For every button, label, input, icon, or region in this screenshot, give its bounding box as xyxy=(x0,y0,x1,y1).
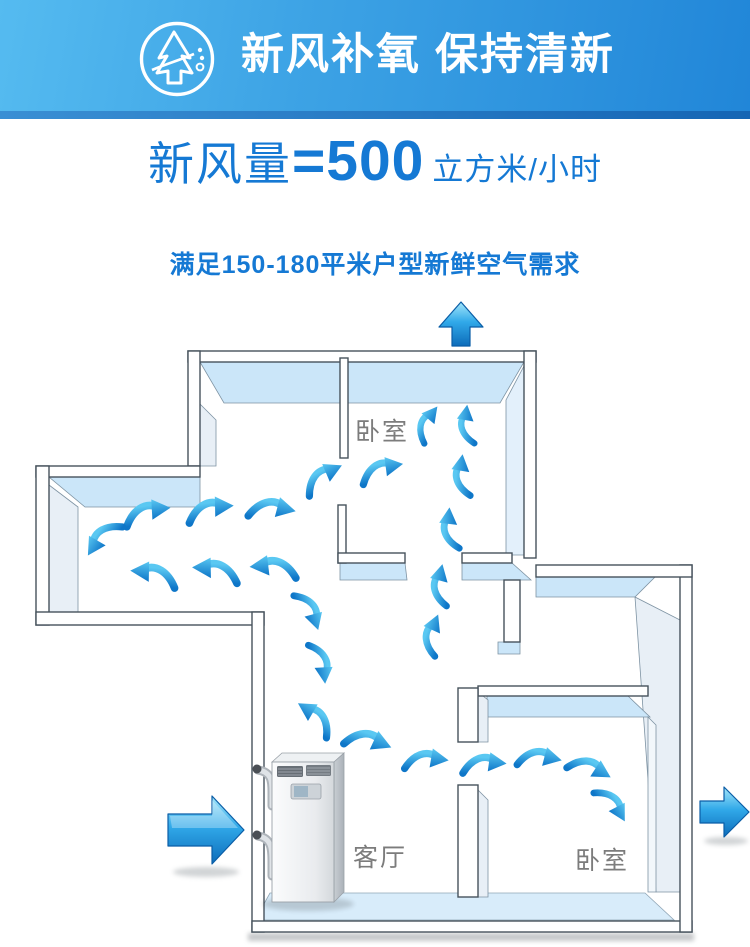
room-label-bedroom-top: 卧室 xyxy=(355,418,409,446)
headline-value: 500 xyxy=(326,128,424,194)
coverage-subline: 满足150-180平米户型新鲜空气需求 xyxy=(0,245,750,281)
banner-content: 新风补氧 保持清新 xyxy=(0,0,750,111)
floor-plan-diagram: 卧室 客厅 卧室 xyxy=(0,300,750,947)
fresh-air-unit xyxy=(253,753,355,911)
room-label-bedroom-right: 卧室 xyxy=(575,847,629,875)
air-outlet-arrow-icon xyxy=(700,787,749,845)
plan-drop-shadow xyxy=(248,933,694,941)
unit-front xyxy=(272,762,334,902)
room-label-living-room: 客厅 xyxy=(353,844,407,872)
fresh-air-volume-headline: 新风量 = 500 立方米/小时 xyxy=(0,128,750,194)
headline-equals: = xyxy=(292,128,326,194)
page: { "banner": { "title": "新风补氧 保持清新", "ico… xyxy=(0,0,750,947)
unit-side xyxy=(334,753,344,902)
pipe-connector xyxy=(253,765,262,774)
headline-unit: 立方米/小时 xyxy=(432,144,602,189)
header-banner: 新风补氧 保持清新 xyxy=(0,0,750,119)
banner-title: 新风补氧 保持清新 xyxy=(241,0,615,111)
fresh-air-inlet-arrow-icon xyxy=(168,796,244,877)
unit-display-screen xyxy=(294,786,308,797)
headline-label: 新风量 xyxy=(148,128,292,194)
exhaust-up-arrow-icon xyxy=(439,302,483,346)
unit-top xyxy=(272,753,344,762)
banner-bottom-strip xyxy=(0,111,750,119)
pipe-connector xyxy=(253,831,262,840)
pine-tree-fresh-air-icon xyxy=(138,20,216,98)
